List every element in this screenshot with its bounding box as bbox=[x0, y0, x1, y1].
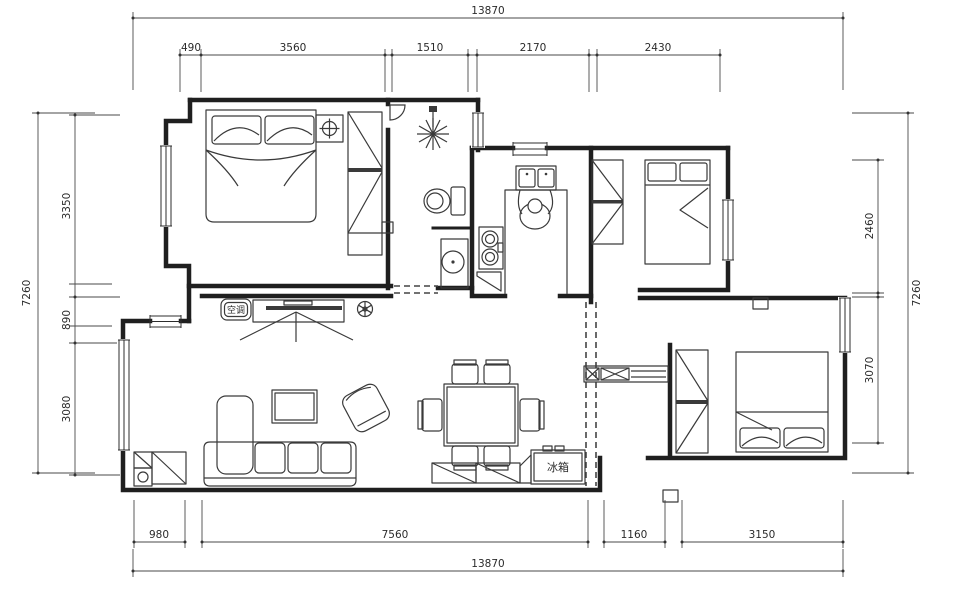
window-entry bbox=[471, 112, 485, 148]
washing-machine bbox=[441, 239, 468, 288]
floor-plan-page: 13870 490 3560 1510 2170 2430 7260 3350 … bbox=[0, 0, 975, 594]
dining-chairs bbox=[418, 360, 544, 470]
dim-bottom-0: 980 bbox=[149, 529, 169, 541]
window-master-bedroom bbox=[159, 145, 173, 227]
dimension-left: 7260 3350 890 3080 bbox=[21, 113, 120, 475]
ceiling-light-icon bbox=[320, 119, 340, 139]
dim-top-3: 2170 bbox=[520, 42, 547, 54]
hallway bbox=[390, 105, 449, 150]
window-bedroom3 bbox=[838, 297, 852, 353]
dim-bottom-total: 13870 bbox=[471, 558, 504, 570]
dim-bottom-3: 3150 bbox=[749, 529, 776, 541]
stove bbox=[479, 227, 503, 269]
dim-bottom-2: 1160 bbox=[621, 529, 648, 541]
chandelier-icon bbox=[417, 106, 449, 150]
sideboard bbox=[432, 455, 531, 483]
dimension-top: 13870 490 3560 1510 2170 2430 bbox=[133, 5, 843, 92]
door-leaf-master bbox=[390, 105, 405, 120]
master-bedroom bbox=[206, 110, 382, 255]
wardrobe-bedroom3 bbox=[676, 350, 708, 453]
dim-left-2: 3080 bbox=[61, 396, 73, 423]
corner-cabinet bbox=[477, 272, 501, 291]
single-bed bbox=[645, 160, 710, 264]
dim-left-0: 3350 bbox=[61, 193, 73, 220]
sofa bbox=[204, 396, 356, 486]
opening-dining-partition bbox=[586, 302, 596, 486]
dim-right-0: 2460 bbox=[864, 213, 876, 240]
ac-unit: 空调 bbox=[221, 299, 251, 320]
bathroom bbox=[424, 187, 468, 288]
dim-top-4: 2430 bbox=[645, 42, 672, 54]
opening-hallway-living bbox=[394, 286, 438, 293]
dim-top-total: 13870 bbox=[471, 5, 504, 17]
coffee-table bbox=[272, 390, 317, 423]
bedroom3 bbox=[584, 350, 828, 453]
double-bed bbox=[206, 110, 316, 222]
window-bedroom2 bbox=[721, 199, 735, 261]
windows bbox=[117, 112, 852, 451]
dim-bottom-1: 7560 bbox=[382, 529, 409, 541]
kitchen-sink bbox=[516, 166, 556, 190]
dim-top-1: 3560 bbox=[280, 42, 307, 54]
floor-plan-canvas: 13870 490 3560 1510 2170 2430 7260 3350 … bbox=[0, 0, 975, 594]
person-figure bbox=[518, 190, 552, 229]
dashed-openings bbox=[394, 286, 596, 486]
kitchen bbox=[477, 166, 567, 294]
window-kitchen bbox=[513, 142, 547, 156]
wardrobe-master bbox=[348, 112, 382, 255]
dim-top-0: 490 bbox=[181, 42, 201, 54]
ac-label: 空调 bbox=[227, 304, 245, 316]
dim-left-1: 890 bbox=[61, 310, 73, 330]
window-living-room bbox=[117, 339, 131, 451]
fridge: 冰箱 bbox=[531, 446, 585, 484]
dining-table bbox=[444, 384, 518, 446]
bedroom2 bbox=[592, 160, 710, 264]
dimension-bottom: 980 7560 1160 3150 13870 bbox=[133, 500, 843, 577]
tv-cabinet bbox=[240, 300, 353, 342]
toilet bbox=[424, 187, 465, 215]
armchair bbox=[340, 381, 392, 434]
double-bed-bedroom3 bbox=[736, 352, 828, 452]
fan-icon bbox=[358, 302, 373, 317]
dim-top-2: 1510 bbox=[417, 42, 444, 54]
dim-right-total: 7260 bbox=[911, 280, 923, 307]
window-step bbox=[150, 315, 181, 328]
dining-area: 冰箱 bbox=[418, 360, 585, 484]
fridge-label: 冰箱 bbox=[547, 460, 569, 474]
nightstand bbox=[316, 115, 343, 142]
dim-left-total: 7260 bbox=[21, 280, 33, 307]
dimension-right: 2460 3070 7260 bbox=[852, 113, 923, 473]
wardrobe-bedroom2 bbox=[592, 160, 623, 244]
dim-right-1: 3070 bbox=[864, 357, 876, 384]
corner-unit bbox=[134, 452, 186, 486]
